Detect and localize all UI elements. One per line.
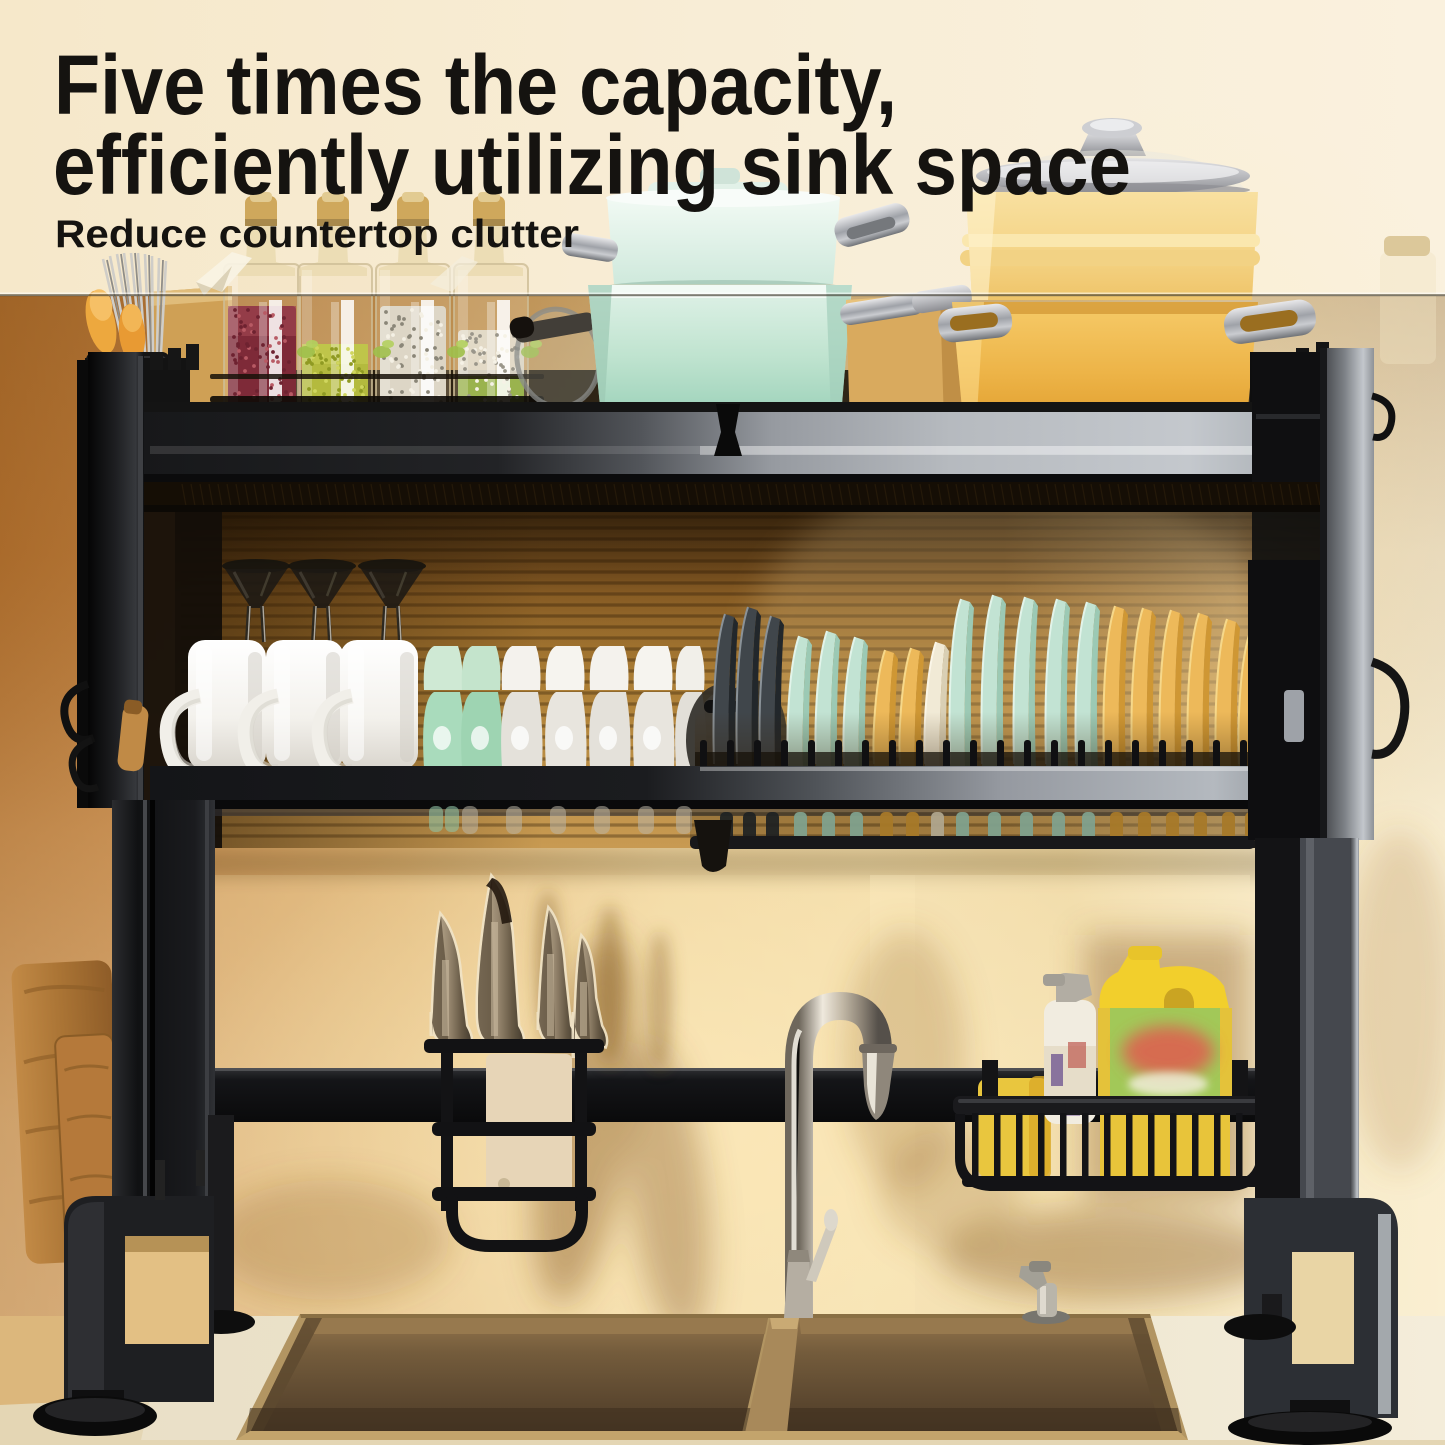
svg-text:efficiently utilizing sink spa: efficiently utilizing sink space <box>53 118 1131 212</box>
svg-text:Reduce countertop clutter: Reduce countertop clutter <box>55 213 579 256</box>
